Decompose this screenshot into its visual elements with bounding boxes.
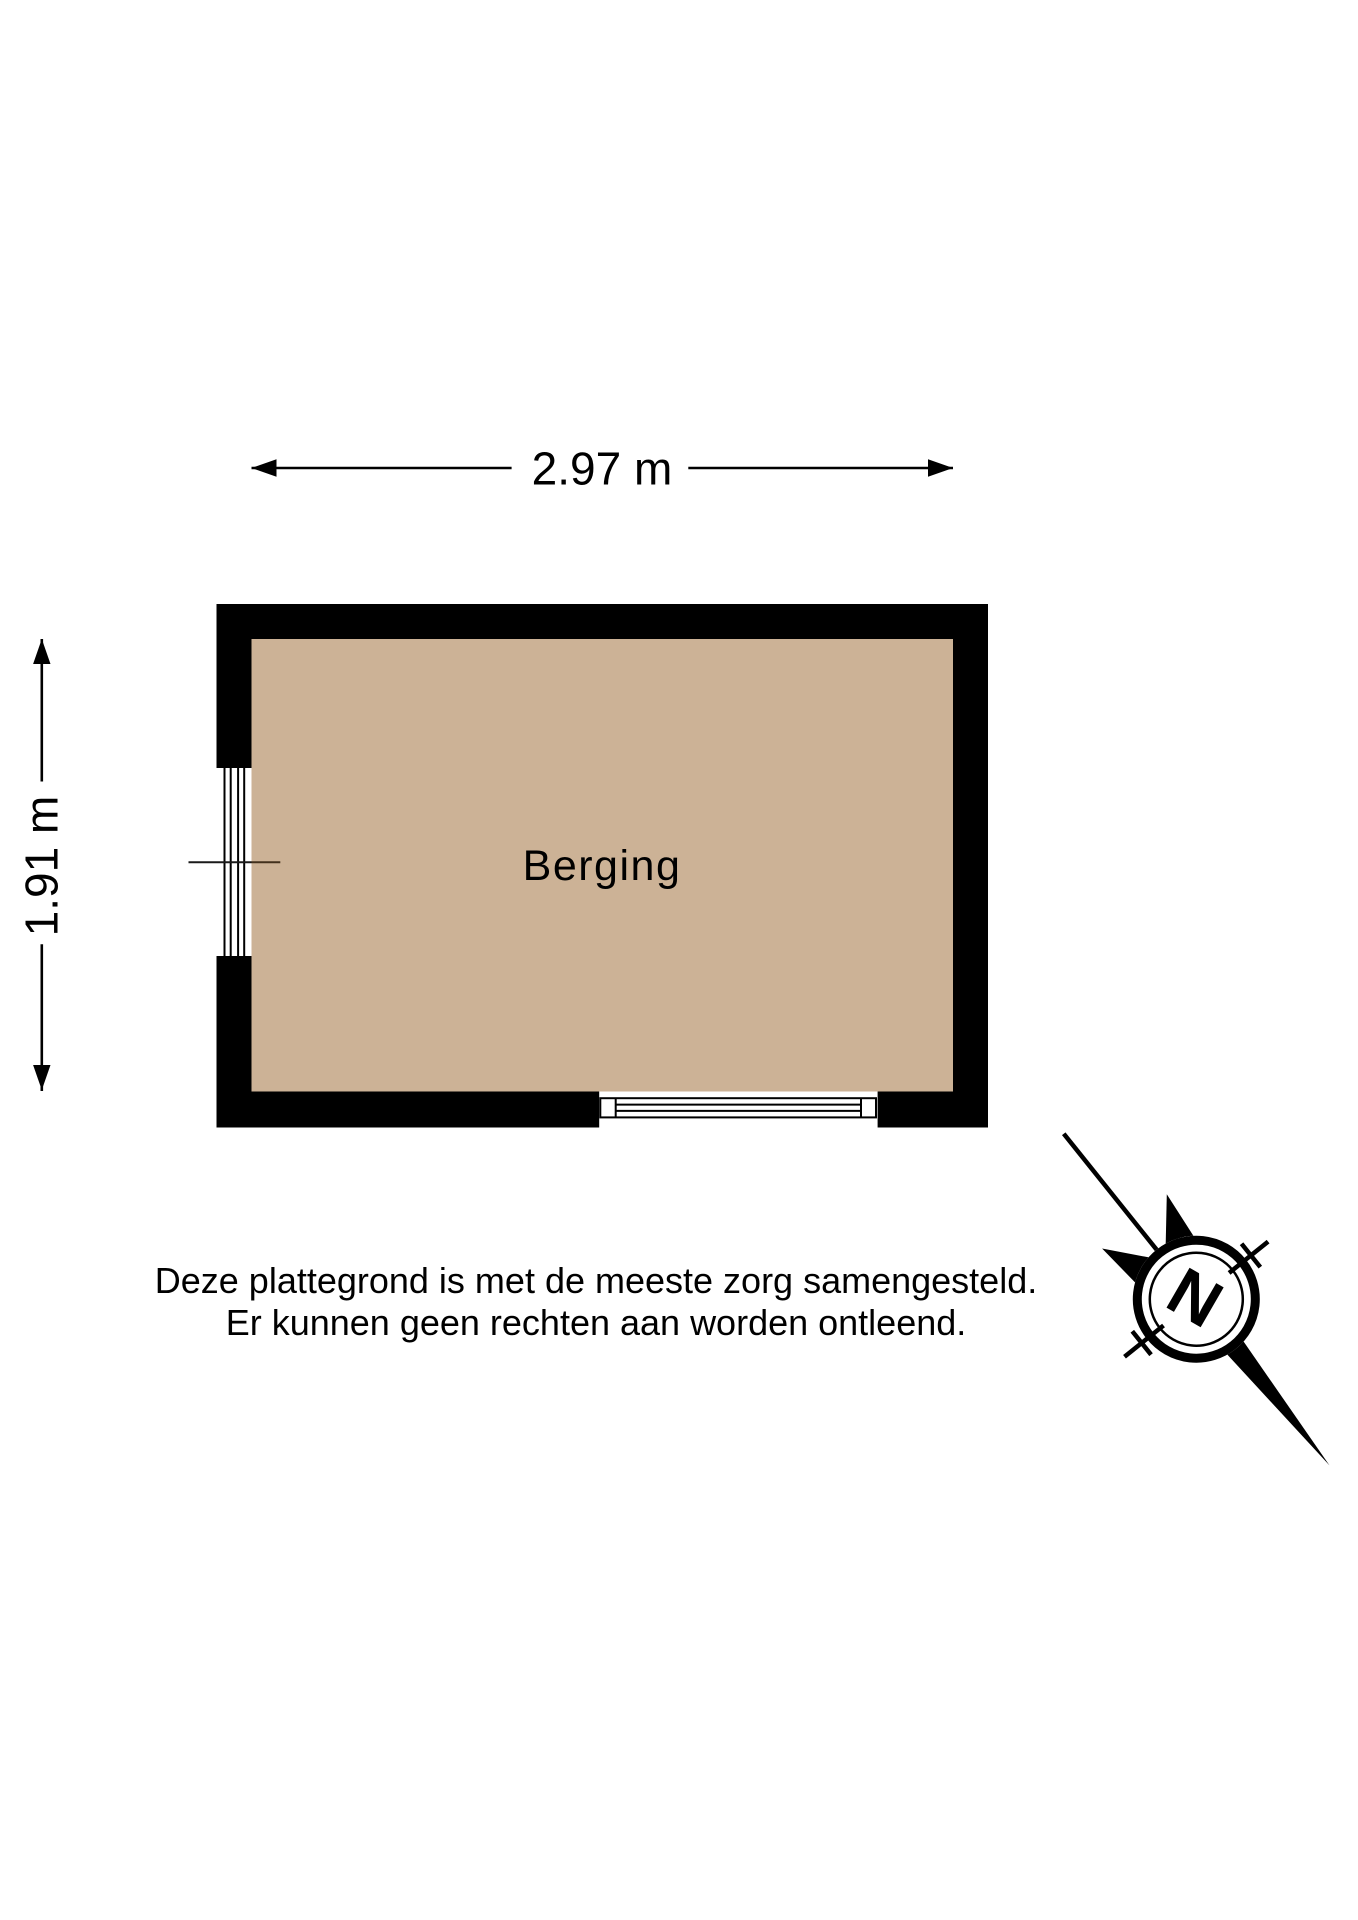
svg-text:Berging: Berging	[523, 842, 682, 890]
svg-text:1.91 m: 1.91 m	[16, 796, 68, 937]
svg-text:2.97 m: 2.97 m	[532, 443, 673, 495]
svg-text:Er kunnen geen rechten aan wor: Er kunnen geen rechten aan worden ontlee…	[226, 1302, 967, 1343]
svg-text:Deze plattegrond is met de mee: Deze plattegrond is met de meeste zorg s…	[155, 1260, 1037, 1301]
